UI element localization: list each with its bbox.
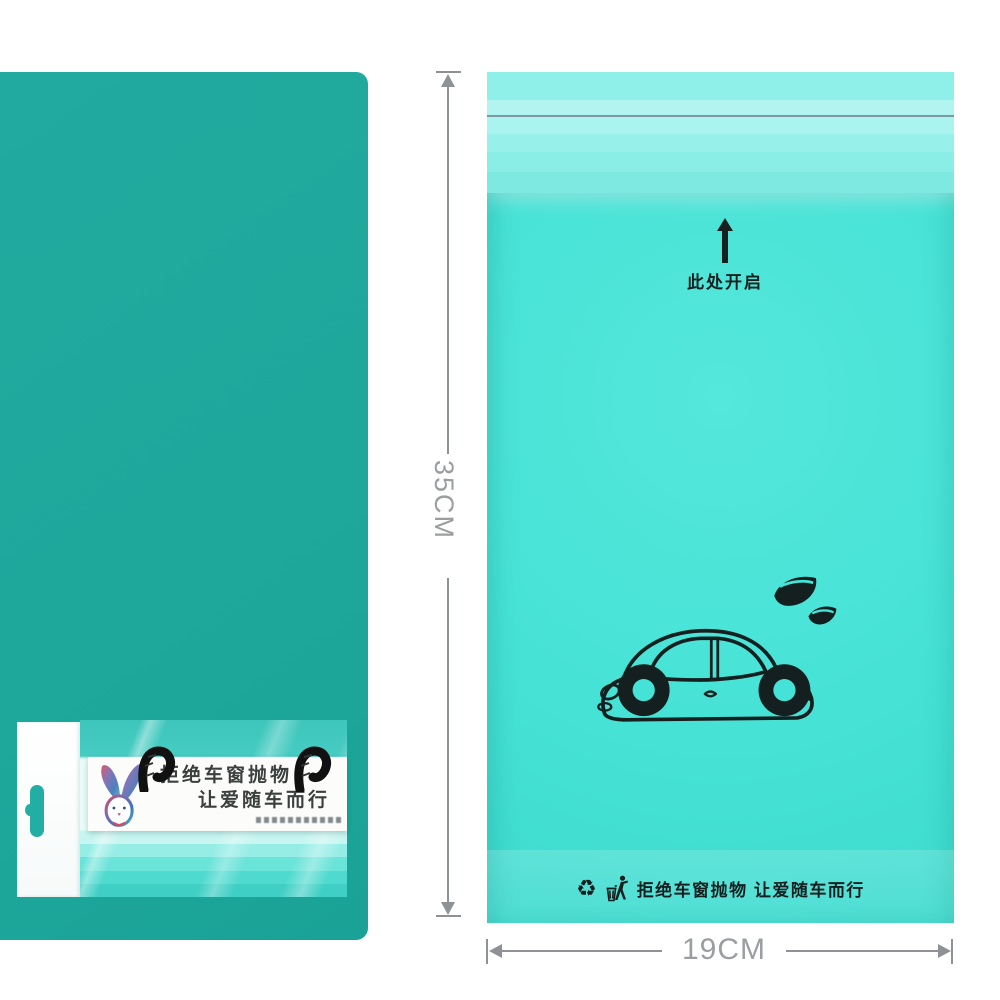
euro-slot-hang-hole [30, 785, 44, 837]
bag-seal-flap [487, 72, 954, 193]
seal-line [487, 115, 954, 117]
height-dim-cap-top [436, 71, 461, 73]
rope-hook-icon [136, 746, 176, 792]
width-dim-line [492, 950, 662, 952]
product-image: 拒绝车窗抛物 让爱随车而行 此处开启 [0, 0, 1000, 1000]
bag-slogan: 拒绝车窗抛物 让爱随车而行 [637, 876, 865, 901]
eco-car-illustration [590, 575, 840, 747]
hang-package: 拒绝车窗抛物 让爱随车而行 [17, 720, 347, 897]
recycle-icon: ♻ [576, 877, 597, 900]
width-dim-line [786, 950, 948, 952]
package-slogan-line2: 让爱随车而行 [198, 790, 330, 812]
arrow-up-icon [717, 218, 733, 264]
package-slogan-line1: 拒绝车窗抛物 [160, 765, 292, 787]
width-dim-arrow-right [938, 944, 951, 958]
leaf-illustration [774, 577, 836, 625]
height-dim-arrow-bottom [441, 902, 455, 915]
fine-print-text [256, 817, 342, 823]
bag-footer-row: ♻ 拒绝车窗抛物 让爱随车而行 [487, 875, 954, 902]
width-dim-cap-left [486, 939, 488, 964]
height-dim-cap-bottom [436, 915, 461, 917]
left-package-panel: 拒绝车窗抛物 让爱随车而行 [0, 72, 368, 940]
package-label-card: 拒绝车窗抛物 让爱随车而行 [88, 757, 347, 831]
open-here-label: 此处开启 [487, 268, 963, 293]
width-dimension-label: 19CM [662, 933, 786, 967]
tidyman-litter-icon [604, 875, 630, 902]
hang-package-header [17, 722, 80, 897]
width-dim-cap-right [951, 939, 953, 964]
rope-hook-icon [292, 746, 332, 792]
height-dim-line [447, 578, 449, 904]
height-dim-line [447, 86, 449, 454]
height-dimension-label: 35CM [428, 460, 459, 572]
bag-body [487, 193, 954, 923]
trash-bag: 此处开启 ♻ [487, 72, 954, 923]
